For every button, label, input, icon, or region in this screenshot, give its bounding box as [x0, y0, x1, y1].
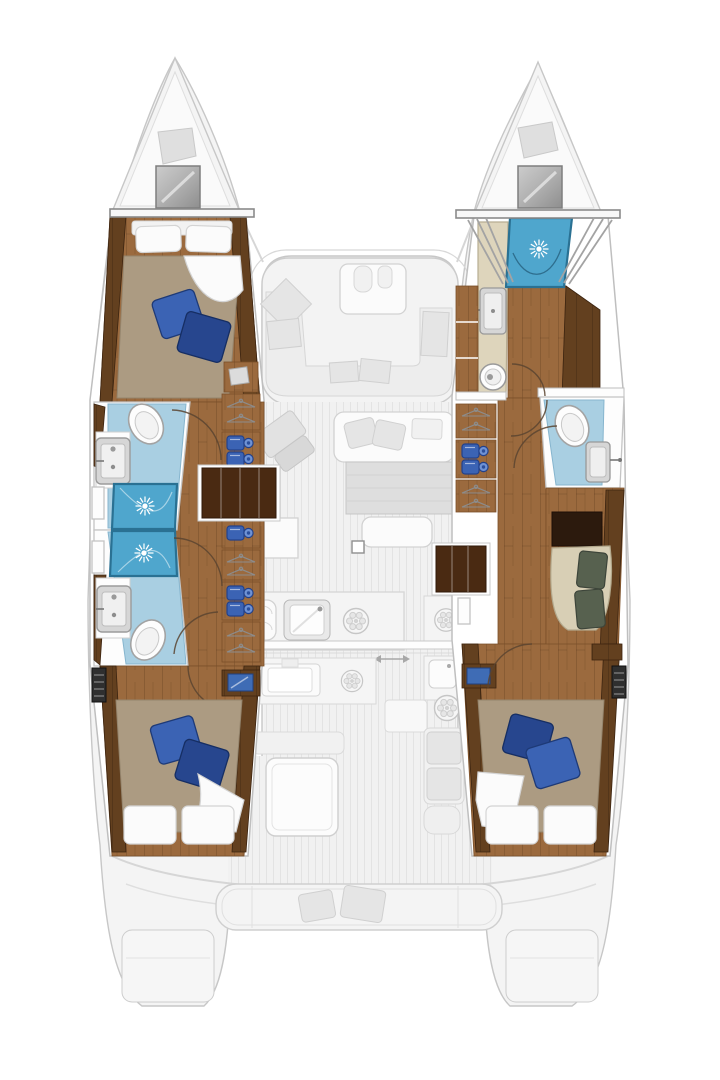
- mast-post: [352, 541, 364, 553]
- lounge-cushion: [329, 361, 358, 383]
- settee-cushion: [576, 551, 608, 590]
- wood-trim: [592, 644, 622, 660]
- starboard-deck-hatch: [518, 166, 562, 208]
- partition: [456, 392, 506, 400]
- corridor-floor: [508, 286, 566, 398]
- island-burner: [341, 670, 362, 691]
- clothes-icon: [227, 602, 253, 616]
- clothes-icon: [227, 586, 253, 600]
- desk-nook: [552, 512, 602, 546]
- white-pillow: [182, 806, 234, 844]
- starboard-aft-cabin: [462, 644, 626, 856]
- catamaran-floor-plan: [0, 0, 720, 1080]
- stern-cushion: [298, 889, 336, 922]
- clothes-icon: [462, 444, 488, 458]
- partition: [538, 388, 624, 397]
- swim-platform-port: [122, 930, 214, 1002]
- forward-cockpit-table: [340, 264, 406, 314]
- cockpit-side-seats: [424, 728, 464, 834]
- tv-locker: [222, 670, 260, 696]
- hanging-locker: [456, 404, 496, 438]
- saloon-bench: [362, 517, 432, 547]
- port-crossbeam: [110, 209, 254, 217]
- lounge-cushion: [421, 311, 449, 356]
- tv-screen: [467, 668, 490, 684]
- port-shower-aft: [110, 531, 177, 576]
- vent-grille: [612, 666, 626, 698]
- vent-grille: [92, 668, 106, 702]
- white-pillow: [136, 225, 182, 253]
- galley-sink: [284, 600, 330, 640]
- starboard-dressing-area: [546, 488, 624, 660]
- white-pillow: [124, 806, 176, 844]
- clothes-icon: [227, 452, 253, 466]
- lounge-cushion: [359, 358, 391, 383]
- hull-window: [92, 487, 104, 519]
- starboard-bow: [474, 62, 602, 214]
- hull-window: [458, 598, 470, 624]
- toilet: [480, 364, 506, 390]
- dining-table: [346, 462, 454, 514]
- clothes-icon: [227, 526, 253, 540]
- port-companionway-steps: [198, 465, 280, 521]
- forward-cockpit: [261, 258, 458, 404]
- stern-cushion: [340, 885, 386, 923]
- port-hull-interior: [90, 216, 280, 856]
- port-deck-hatch: [156, 166, 200, 208]
- inboard-cabinet: [456, 286, 478, 392]
- port-aft-cabin: [92, 666, 260, 856]
- clothes-icon: [227, 436, 253, 450]
- starboard-wardrobes: [456, 404, 496, 512]
- cockpit-table: [266, 758, 338, 836]
- starboard-companionway-steps: [432, 543, 490, 595]
- sofa-pillow: [372, 419, 407, 451]
- white-pillow: [186, 225, 232, 253]
- starboard-mid-bathroom: [540, 397, 624, 488]
- tv-locker: [462, 664, 496, 688]
- clothes-icon: [462, 460, 488, 474]
- cockpit-bench: [252, 732, 344, 754]
- galley-burner: [344, 609, 369, 634]
- catamaran-floor-plan-page: [0, 0, 720, 1080]
- port-shower-forward: [112, 484, 177, 529]
- white-pillow: [544, 806, 596, 844]
- lounge-cushion: [267, 318, 302, 349]
- cockpit-winch: [435, 696, 460, 721]
- settee-cushion: [574, 589, 605, 629]
- port-bow: [112, 58, 240, 212]
- swim-platform-starboard: [506, 930, 598, 1002]
- cockpit-module: [385, 700, 427, 732]
- starboard-crossbeam: [456, 210, 620, 218]
- locker-item: [229, 367, 249, 385]
- sofa-pillow: [412, 418, 443, 439]
- hull-window: [92, 541, 104, 573]
- white-pillow: [486, 806, 538, 844]
